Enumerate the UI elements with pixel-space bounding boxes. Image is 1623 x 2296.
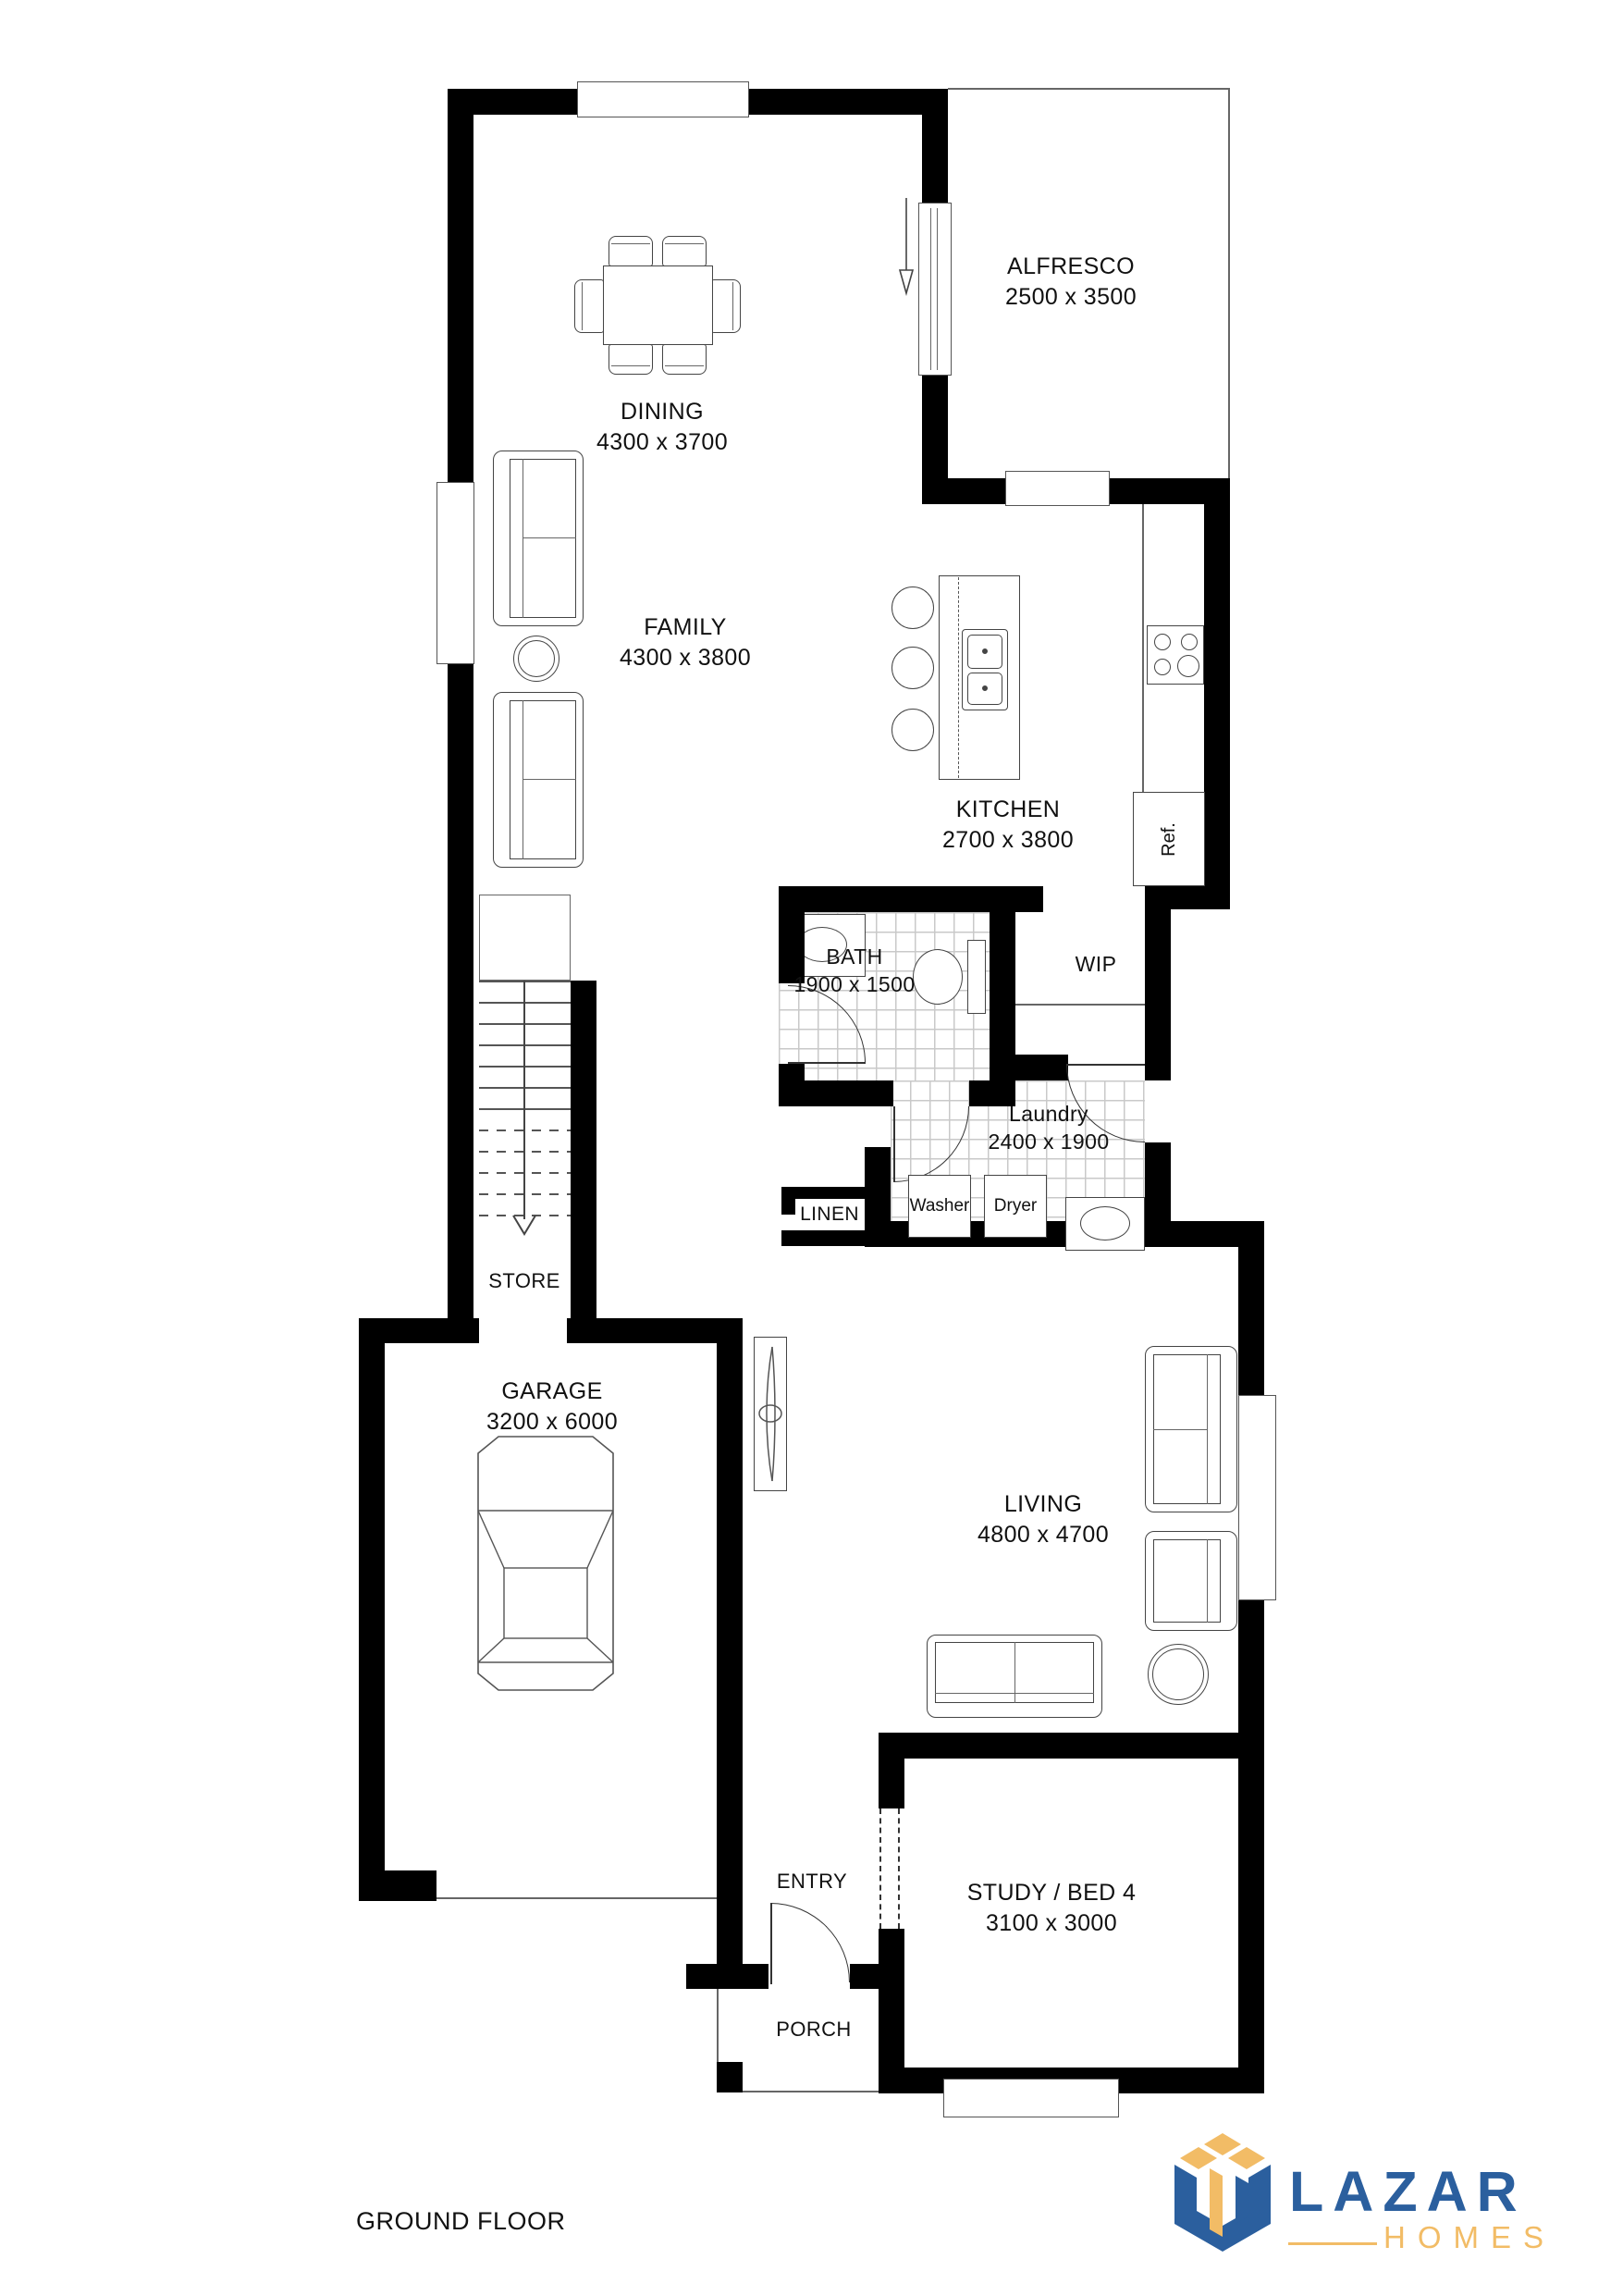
cooktop-burner (1154, 634, 1171, 650)
wall (448, 89, 473, 486)
wip-name: WIP (1076, 951, 1117, 979)
washer: Washer (908, 1175, 971, 1238)
kitchen-bench-line (1142, 504, 1144, 796)
door-leaf (788, 1062, 866, 1064)
wall (779, 886, 1043, 912)
cased-opening (879, 1808, 904, 1929)
room-label-kitchen: KITCHEN 2700 x 3800 (942, 795, 1074, 855)
fridge-label: Ref. (1159, 822, 1180, 857)
garage-name: GARAGE (486, 1376, 618, 1407)
living-sofa-back-line (1207, 1354, 1208, 1504)
wall (1015, 1055, 1068, 1080)
wall (359, 1318, 385, 1873)
bath-dims: 1900 x 1500 (793, 971, 915, 999)
fridge-space: Ref. (1133, 792, 1205, 886)
dining-chair-line (611, 243, 650, 244)
bar-stool (891, 647, 934, 689)
dining-chair (662, 236, 707, 266)
linen-name: LINEN (800, 1202, 859, 1227)
down-arrow-icon (893, 198, 919, 296)
brand-logo-cube-icon (1162, 2128, 1284, 2274)
wall (879, 1733, 1264, 1759)
bath-name: BATH (793, 944, 915, 971)
wall (850, 1964, 904, 1989)
room-label-bath: BATH 1900 x 1500 (793, 944, 915, 999)
sliding-door-track (930, 208, 931, 370)
sliding-door-track (937, 208, 938, 370)
dining-chair (574, 279, 604, 333)
laundry-name: Laundry (988, 1101, 1109, 1129)
alfresco-name: ALFRESCO (1005, 252, 1137, 282)
cooktop-burner (1177, 655, 1199, 677)
window (577, 81, 749, 117)
sink-drain-dot (982, 685, 988, 691)
linen-wall (781, 1230, 881, 1246)
bar-stool (891, 586, 934, 629)
stair-landing (479, 895, 571, 981)
kitchen-name: KITCHEN (942, 795, 1074, 825)
dining-chair-line (611, 365, 650, 366)
room-label-entry: ENTRY (777, 1869, 847, 1895)
room-label-dining: DINING 4300 x 3700 (596, 397, 728, 457)
room-label-wip: WIP (1076, 951, 1117, 979)
wall (922, 375, 948, 478)
dining-chair-line (665, 365, 704, 366)
garage-internal-door-leaf-icon (756, 1343, 784, 1485)
floor-plan: Ref. Washer Dryer DINING 4300 x 3700 ALF… (0, 0, 1623, 2296)
living-sofa-divider (1153, 1429, 1207, 1430)
dining-dims: 4300 x 3700 (596, 427, 728, 458)
room-label-living: LIVING 4800 x 4700 (977, 1489, 1109, 1549)
wall (448, 663, 473, 1319)
toilet-bowl (913, 949, 963, 1005)
living-name: LIVING (977, 1489, 1109, 1520)
wall (1238, 1600, 1264, 2093)
room-label-family: FAMILY 4300 x 3800 (620, 612, 751, 673)
toilet-cistern (967, 940, 986, 1014)
garage-door-line (435, 1897, 717, 1899)
brand-divider-line (1288, 2242, 1377, 2245)
wall (717, 1343, 743, 1964)
laundry-trough-basin (1080, 1206, 1130, 1241)
kitchen-dims: 2700 x 3800 (942, 825, 1074, 856)
washer-label: Washer (910, 1196, 970, 1216)
wall (779, 1080, 893, 1106)
cased-opening-dash (879, 1808, 881, 1929)
wall (879, 1733, 904, 1808)
room-label-alfresco: ALFRESCO 2500 x 3500 (1005, 252, 1137, 312)
door-leaf (1066, 1064, 1145, 1066)
entry-name: ENTRY (777, 1869, 847, 1895)
dining-table (603, 265, 713, 345)
family-name: FAMILY (620, 612, 751, 643)
window (1005, 471, 1110, 506)
wall (749, 89, 948, 115)
dining-name: DINING (596, 397, 728, 427)
wall (1204, 478, 1230, 909)
dryer: Dryer (984, 1175, 1047, 1238)
stair-down-arrow-icon (510, 1214, 538, 1238)
window (436, 482, 474, 664)
porch-name: PORCH (776, 2017, 851, 2043)
room-label-study: STUDY / BED 4 3100 x 3000 (967, 1878, 1137, 1938)
wall (717, 2062, 743, 2092)
dining-chair (609, 236, 653, 266)
dining-chair (662, 344, 707, 375)
wall (1145, 883, 1230, 909)
family-dims: 4300 x 3800 (620, 643, 751, 673)
alfresco-outline-right (1228, 88, 1230, 480)
wall (922, 89, 948, 204)
wall (1238, 1221, 1264, 1397)
living-armchair-seat (1153, 1539, 1221, 1623)
wall (922, 478, 1005, 504)
window (943, 2079, 1119, 2117)
porch-edge-bottom (717, 2091, 891, 2092)
dining-chair-line (665, 243, 704, 244)
brand-name: LAZAR (1289, 2159, 1527, 2224)
dining-chair (609, 344, 653, 375)
cooktop-burner (1181, 634, 1198, 650)
wall (990, 912, 1015, 1080)
linen-wall (781, 1187, 881, 1199)
pantry-shelf-line (1015, 1004, 1145, 1006)
study-name: STUDY / BED 4 (967, 1878, 1137, 1908)
stair-direction-line (523, 981, 525, 1219)
door-leaf (893, 1106, 895, 1182)
entry-door-arc (770, 1903, 850, 1982)
family-side-table-inner (518, 640, 555, 677)
car-icon (467, 1429, 624, 1697)
wall (686, 1964, 768, 1989)
entry-door-leaf (770, 1903, 772, 1984)
sliding-door (918, 203, 952, 376)
living-armchair-back-line (1207, 1539, 1208, 1623)
room-label-porch: PORCH (776, 2017, 851, 2043)
garage-dims: 3200 x 6000 (486, 1407, 618, 1438)
laundry-dims: 2400 x 1900 (988, 1129, 1109, 1156)
bar-stool (891, 709, 934, 751)
alfresco-dims: 2500 x 3500 (1005, 282, 1137, 313)
wall (359, 1870, 436, 1901)
living-round-table-inner (1152, 1648, 1204, 1700)
store-name: STORE (488, 1268, 559, 1295)
living-dims: 4800 x 4700 (977, 1520, 1109, 1550)
cased-opening-dash (898, 1808, 900, 1929)
room-label-garage: GARAGE 3200 x 6000 (486, 1376, 618, 1437)
cooktop (1147, 625, 1204, 685)
floor-title: GROUND FLOOR (356, 2207, 566, 2236)
cooktop-burner (1154, 659, 1171, 675)
family-sofa-divider (523, 537, 576, 538)
dining-chair-line (732, 282, 733, 330)
linen-wall (781, 1187, 795, 1215)
window (1238, 1395, 1276, 1600)
family-sofa-divider (523, 779, 576, 780)
alfresco-outline-top (948, 88, 1230, 90)
dining-chair (711, 279, 741, 333)
room-label-laundry: Laundry 2400 x 1900 (988, 1101, 1109, 1156)
dining-chair-line (582, 282, 583, 330)
island-overhang-dashed-line (958, 577, 959, 778)
living-sofa-2-front-line (935, 1693, 1094, 1694)
sink-drain-dot (982, 648, 988, 654)
room-label-linen: LINEN (800, 1202, 859, 1227)
room-label-store: STORE (488, 1268, 559, 1295)
wall (1145, 909, 1171, 1080)
wall (571, 981, 596, 1343)
brand-tagline: HOMES (1383, 2220, 1555, 2255)
study-dims: 3100 x 3000 (967, 1908, 1137, 1939)
dryer-label: Dryer (994, 1196, 1037, 1216)
